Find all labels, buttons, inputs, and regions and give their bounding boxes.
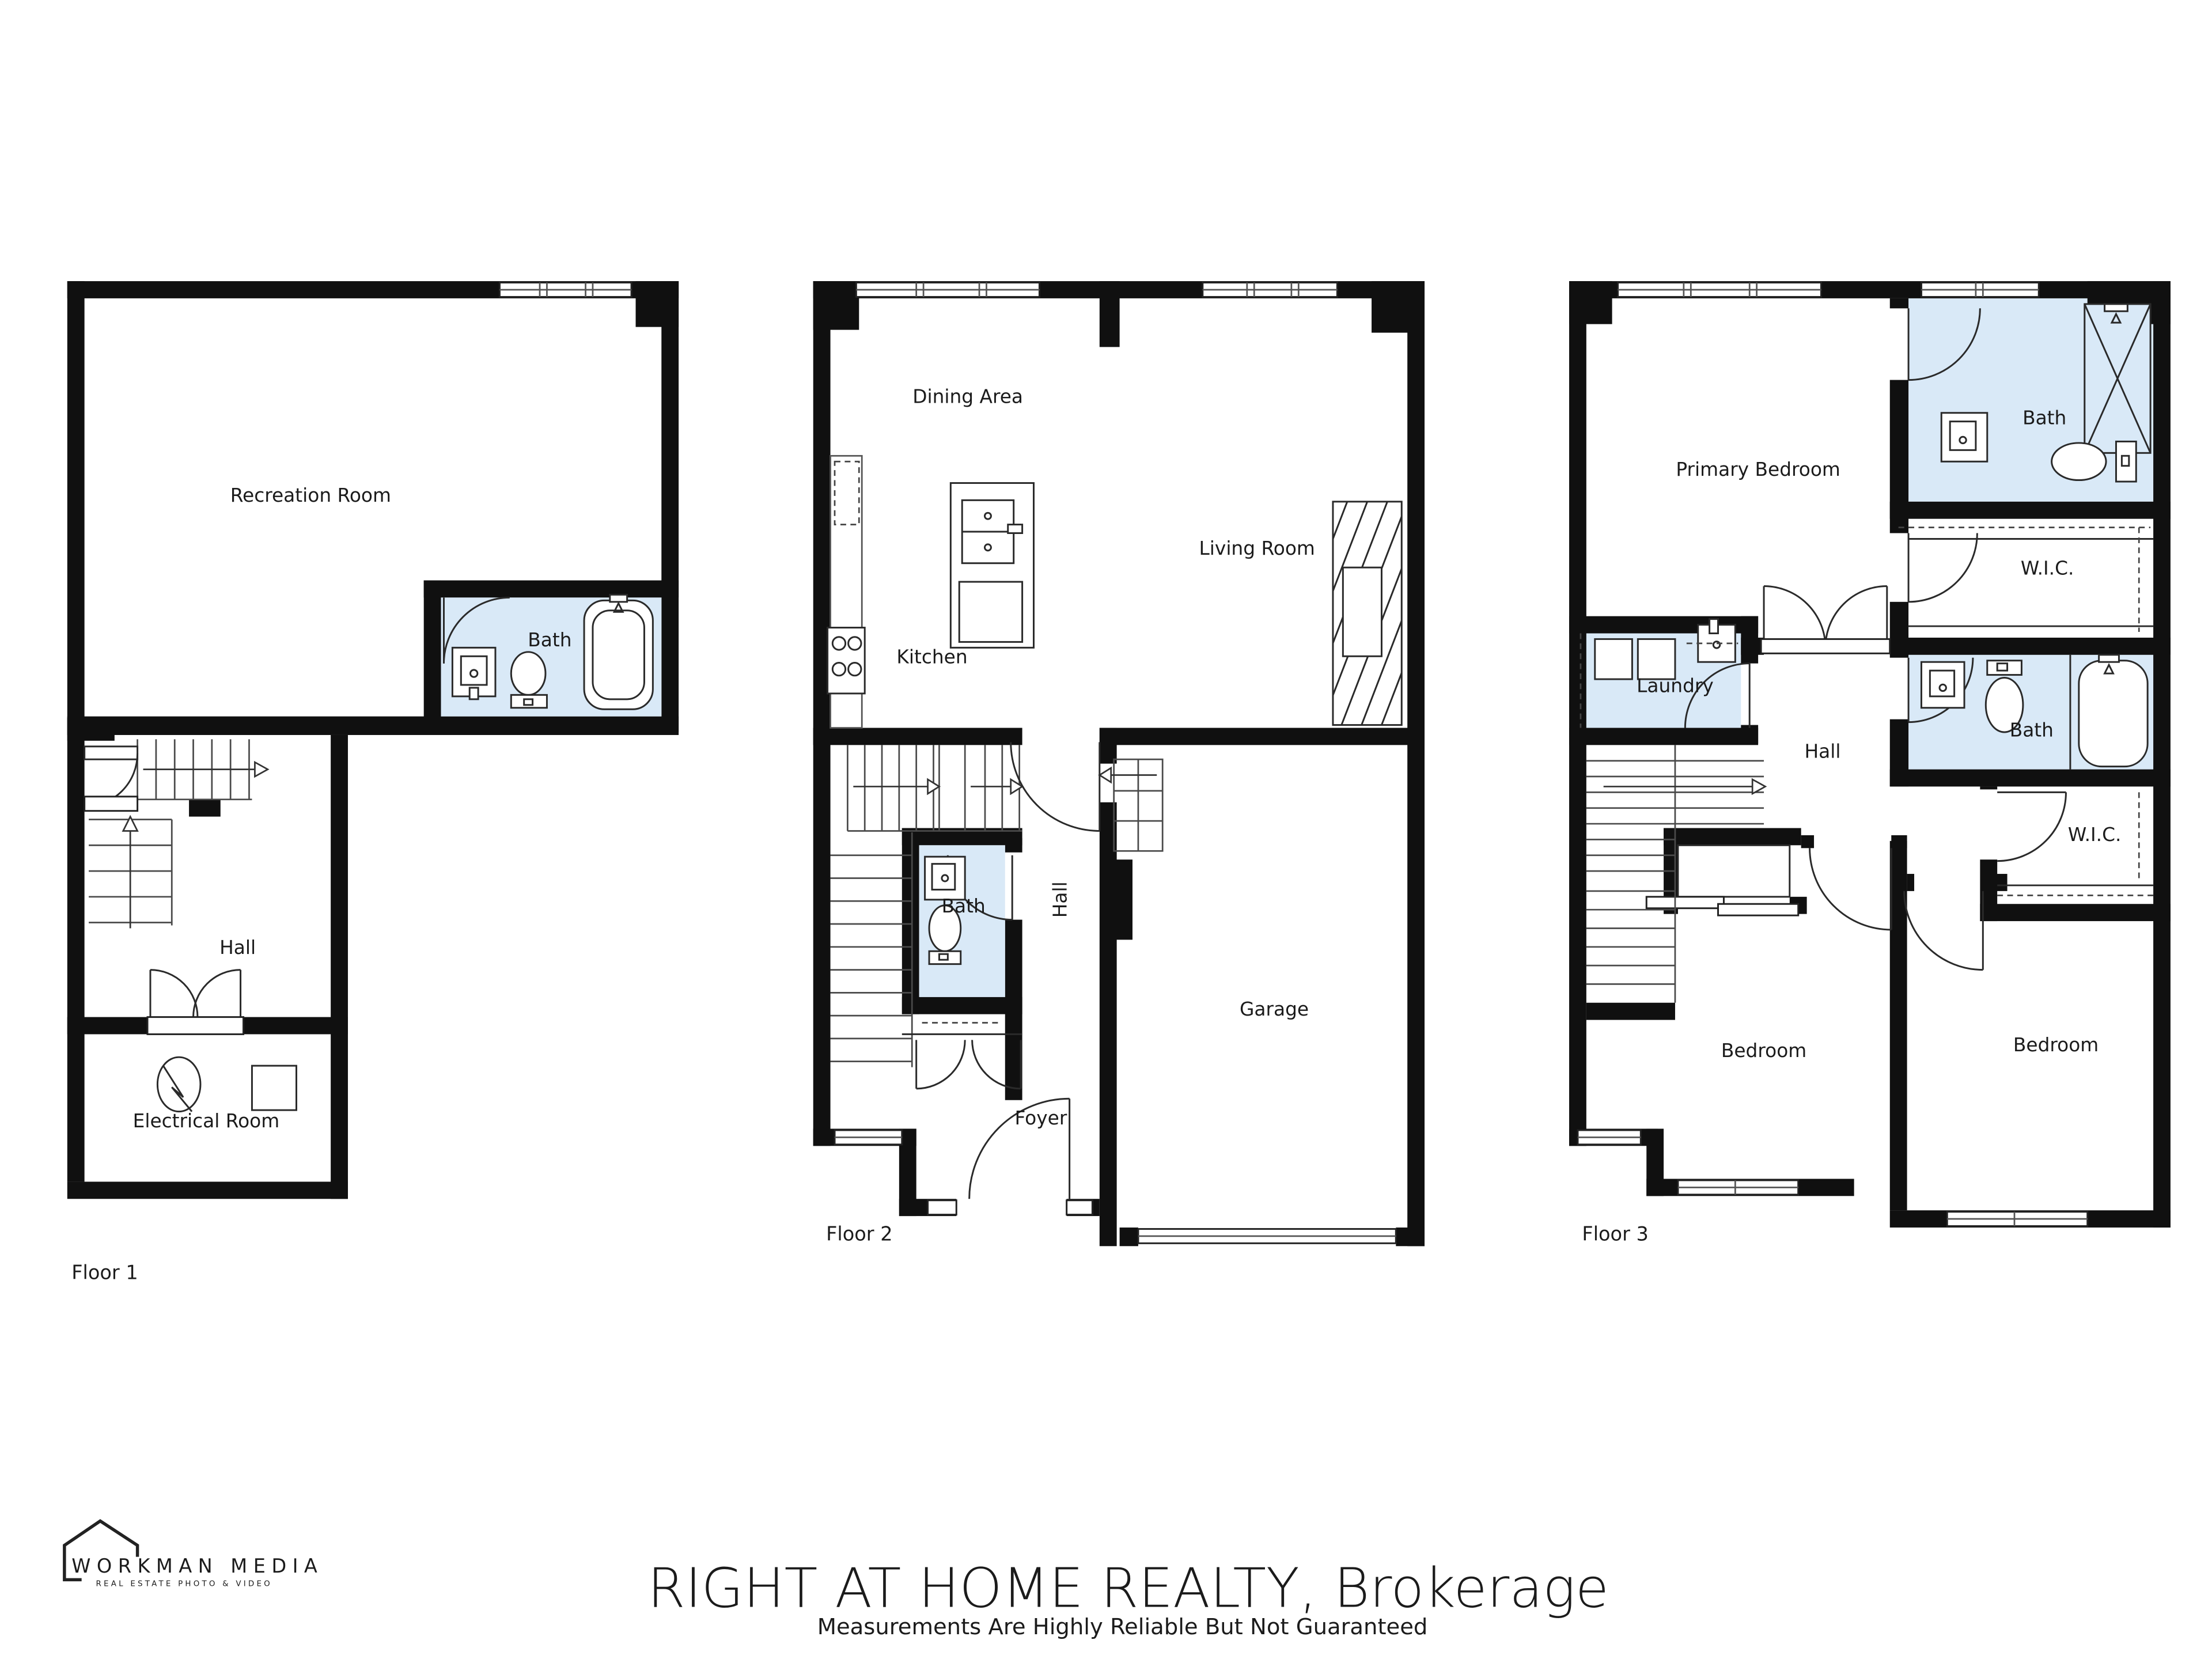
room-label-garage: Garage [1240, 998, 1309, 1020]
room-label-bath-f2: Bath [942, 895, 986, 917]
room-label-laundry: Laundry [1637, 675, 1714, 696]
sink-icon [925, 857, 965, 900]
kitchen-island-icon [950, 483, 1033, 648]
brokerage-watermark: RIGHT AT HOME REALTY, Brokerage [647, 1557, 1609, 1620]
floor3-plan: Primary Bedroom Bath W.I.C. Laundry Hall… [1569, 281, 2171, 1245]
fireplace-icon [1241, 502, 1468, 725]
shower-icon [2085, 304, 2150, 453]
toilet-icon [511, 652, 547, 708]
floor1-label: Floor 1 [71, 1261, 138, 1283]
room-label-bath-primary: Bath [2022, 407, 2066, 429]
logo-name: WORKMAN MEDIA [71, 1555, 323, 1577]
room-label-bedroom-left: Bedroom [1721, 1040, 1806, 1062]
footer: WORKMAN MEDIA REAL ESTATE PHOTO & VIDEO … [65, 1521, 1609, 1639]
room-label-recreation: Recreation Room [230, 484, 391, 506]
door-arc-icon [1011, 742, 1100, 831]
garage-door-icon [1138, 1229, 1396, 1243]
room-label-living: Living Room [1199, 537, 1315, 559]
floor3-label: Floor 3 [1582, 1222, 1648, 1245]
bathtub-icon [2070, 655, 2147, 770]
floor1-walls [67, 281, 679, 1199]
floorplan-canvas: Recreation Room Bath Hall Electrical Roo… [0, 0, 2212, 1659]
room-label-electrical: Electrical Room [133, 1110, 280, 1132]
toilet-icon [2052, 441, 2137, 482]
door-arc-icon [1904, 891, 1983, 970]
closet-rod-icon [1899, 528, 2153, 632]
room-label-primary-bedroom: Primary Bedroom [1676, 459, 1840, 480]
sink-icon [452, 647, 495, 699]
room-label-kitchen: Kitchen [896, 646, 967, 668]
floor2-walls [813, 281, 1425, 1246]
room-label-bedroom-right: Bedroom [2013, 1034, 2099, 1056]
electrical-panel-icon [252, 1066, 296, 1110]
sink-icon [1941, 413, 1987, 462]
room-label-hall-f1: Hall [219, 937, 256, 959]
room-label-dining: Dining Area [912, 385, 1023, 407]
entry-door-icon [928, 1099, 1093, 1214]
door-arc-icon [1997, 792, 2066, 861]
bathtub-icon [584, 594, 653, 709]
closet-doors-icon [902, 1023, 1022, 1089]
room-label-foyer: Foyer [1014, 1107, 1067, 1129]
door-arc-icon [1810, 848, 1892, 930]
room-label-wic-primary: W.I.C. [2021, 558, 2074, 579]
room-label-bath-f1: Bath [528, 629, 571, 651]
disclaimer-text: Measurements Are Highly Reliable But Not… [817, 1614, 1428, 1640]
logo-tagline: REAL ESTATE PHOTO & VIDEO [96, 1580, 272, 1589]
electrical-symbol-icon [157, 1057, 200, 1111]
window-icon [499, 283, 631, 297]
double-door-icon [147, 970, 244, 1035]
kitchen-counter-icon [828, 456, 865, 728]
floor1-plan: Recreation Room Bath Hall Electrical Roo… [67, 281, 679, 1283]
room-label-hall-f2: Hall [1050, 881, 1071, 918]
double-door-icon [1761, 586, 1890, 653]
sink-icon [1921, 662, 1964, 708]
door-arc-icon [85, 747, 138, 811]
door-arc-icon [1908, 533, 1977, 602]
floor2-label: Floor 2 [826, 1222, 892, 1245]
floor2-plan: Dining Area Living Room Kitchen Bath Hal… [813, 281, 1468, 1246]
room-label-wic2: W.I.C. [2068, 824, 2122, 846]
staircase-icon [89, 739, 268, 928]
room-label-hall-f3: Hall [1804, 741, 1840, 763]
room-label-bath-f3: Bath [2010, 719, 2054, 741]
